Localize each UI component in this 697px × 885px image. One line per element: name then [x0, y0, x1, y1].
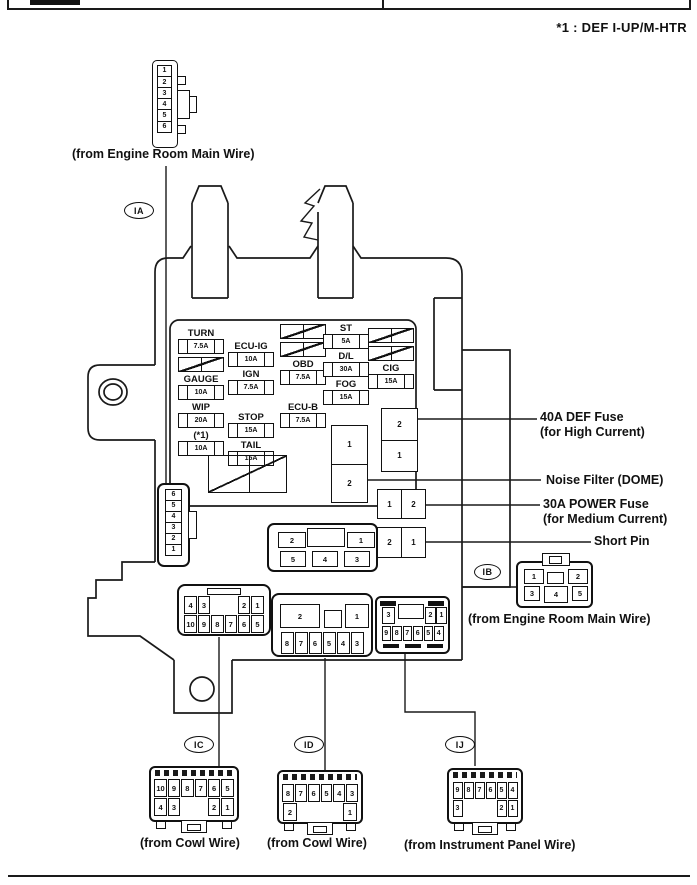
fuse-box-diagram-page: *1 : DEF I-UP/M-HTR 123456 (from Engine … [0, 0, 697, 885]
pin-cell [486, 800, 496, 817]
callout-line: (for Medium Current) [543, 512, 667, 527]
fuse-name: (*1) [178, 431, 224, 441]
connector-instrument-panel-ij: 987654 321 [447, 768, 523, 824]
fuse-amperage: 10A [237, 352, 265, 367]
cropped-table-edge [8, 0, 690, 10]
connector-latch [188, 511, 197, 539]
connector-foot [156, 821, 166, 829]
fuse-name: STOP [228, 413, 274, 423]
pin-row: 4321 [154, 798, 234, 816]
fuse: IGN 7.5A [228, 370, 274, 395]
blank-cell [324, 610, 342, 628]
ij-connector-block: 3 2 1 987654 [375, 596, 450, 654]
fuse-amperage: 7.5A [289, 370, 317, 385]
pin-cell: 3 [453, 800, 463, 817]
terminal-cell: 2 [378, 528, 401, 557]
fuse-slot [280, 324, 326, 339]
pin-cell: 6 [309, 632, 322, 654]
fuse-amperage: 5A [332, 334, 360, 349]
pin-cell: 5 [221, 779, 233, 797]
fuse [368, 328, 414, 343]
short-pin: 2 1 [377, 527, 426, 558]
pin-cell: 4 [184, 596, 196, 614]
pin-cell: 4 [333, 784, 345, 802]
pin-cell: 7 [195, 779, 207, 797]
shading [405, 644, 421, 648]
pin-cell: 5 [251, 615, 263, 633]
pin-cell: 6 [413, 626, 423, 641]
connector-engine-room-top: 123456 [152, 60, 202, 150]
callout-line: Noise Filter (DOME) [546, 473, 663, 488]
blank-cell [547, 572, 564, 584]
noise-filter-dome: 1 2 [331, 425, 368, 503]
pin-row: 21 [282, 803, 358, 821]
pin-cell: 5 [280, 551, 306, 567]
fuse: FOG 15A [323, 380, 369, 405]
pin-cell: 8 [392, 626, 402, 641]
label-from-engine-room-ib: (from Engine Room Main Wire) [468, 612, 651, 626]
fuse-name: D/L [323, 352, 369, 362]
shading [380, 601, 396, 606]
fuse-slot: 15A [368, 374, 414, 389]
pin-row: 1098765 [182, 615, 266, 633]
connector-foot [454, 823, 464, 831]
pin-cell: 10 [154, 779, 166, 797]
fuse-name: ST [323, 324, 369, 334]
fuse-column-4: ST 5A D/L 30A FOG 15A [323, 324, 369, 408]
pin-cell: 5 [424, 626, 434, 641]
pin-cell: 2 [283, 803, 297, 821]
fuse-amperage [281, 324, 325, 339]
pin-cell: 4 [154, 798, 166, 816]
fuse-name: CIG [368, 364, 414, 374]
pin-cell: 6 [486, 782, 496, 799]
connector-shroud [453, 772, 517, 778]
fuse-slot: 7.5A [280, 370, 326, 385]
connector-code-ij: IJ [445, 736, 475, 753]
pin-row: 876543 [282, 784, 358, 802]
terminal-cell: 2 [332, 464, 367, 503]
side-connector-ia: 654321 [157, 483, 190, 567]
fuse-slot: 7.5A [228, 380, 274, 395]
pin-cell [475, 800, 485, 817]
pin-cell: 2 [497, 800, 507, 817]
pin-cell: 2 [425, 607, 436, 624]
callout-line: 40A DEF Fuse [540, 410, 645, 425]
fuse [368, 346, 414, 361]
pin-cell: 1 [221, 798, 233, 816]
pin-cell: 2 [238, 596, 250, 614]
side-pin-column: 654321 [165, 490, 182, 556]
shading [383, 644, 399, 648]
label-from-engine-room-top: (from Engine Room Main Wire) [72, 147, 255, 161]
pin-cell: 9 [382, 626, 392, 641]
pin-cell: 1 [436, 607, 447, 624]
fuse-slot: 7.5A [280, 413, 326, 428]
connector-code-ib: IB [474, 564, 501, 580]
pin-cell: 1 [524, 569, 544, 584]
callout-def-fuse: 40A DEF Fuse (for High Current) [540, 410, 645, 439]
terminal-cell: 1 [378, 490, 401, 518]
fuse-column-2: ECU-IG 10A IGN 7.5A STOP 15A TAIL 15A [228, 342, 274, 469]
pin-cell: 7 [295, 632, 308, 654]
connector-latch-tip [189, 96, 197, 113]
terminal-cell: 1 [332, 426, 367, 464]
pin-cell: 10 [184, 615, 196, 633]
blank-cell [207, 588, 241, 595]
terminal-cell: 1 [401, 528, 425, 557]
fuse-slot [368, 328, 414, 343]
power-fuse-30a: 1 2 [377, 489, 426, 519]
pin-cell: 9 [198, 615, 210, 633]
pin-cell: 8 [211, 615, 223, 633]
terminal-cell: 2 [401, 490, 425, 518]
fuse-amperage: 7.5A [237, 380, 265, 395]
fuse-amperage [281, 342, 325, 357]
pin-cell: 5 [321, 784, 333, 802]
fuse [178, 357, 224, 372]
fuse-name: ECU-B [280, 403, 326, 413]
footnote-def-i-up: *1 : DEF I-UP/M-HTR [387, 20, 687, 35]
fuse-amperage [369, 328, 413, 343]
pin-cell: 7 [475, 782, 485, 799]
pin-row: 321 [452, 800, 518, 817]
fuse-amperage: 10A [187, 441, 215, 456]
pin-cell: 1 [345, 604, 369, 628]
connector-shroud [155, 770, 233, 776]
connector-cowl-ic: 1098765 4321 [149, 766, 239, 822]
fuse-slot: 7.5A [178, 339, 224, 354]
pin-cell: 5 [323, 632, 336, 654]
fuse: D/L 30A [323, 352, 369, 377]
pin-cell: 4 [508, 782, 518, 799]
pin-cell: 4 [434, 626, 444, 641]
pin-cell: 3 [346, 784, 358, 802]
pin-cell: 9 [453, 782, 463, 799]
pin-cell: 1 [508, 800, 518, 817]
pin-cell [328, 803, 342, 821]
fuse-amperage: 15A [377, 374, 405, 389]
fuse-name: TAIL [228, 441, 274, 451]
connector-foot [506, 823, 516, 831]
fuse: CIG 15A [368, 364, 414, 389]
foot-hole [190, 677, 214, 701]
pin-cell: 6 [208, 779, 220, 797]
terminal-cell: 1 [382, 440, 417, 472]
connector-pin-column: 123456 [157, 66, 172, 133]
connector-engine-room-ib: 1 2 3 4 5 [516, 561, 593, 608]
fuse [280, 342, 326, 357]
fuse-slot: 20A [178, 413, 224, 428]
mounting-post-left [192, 186, 228, 298]
pin-cell: 2 [208, 798, 220, 816]
pin-cell: 4 [337, 632, 350, 654]
blank-cell [307, 528, 345, 547]
fuse-amperage: 20A [187, 413, 215, 428]
connector-code-ic: IC [184, 736, 214, 753]
pin-cell [464, 800, 474, 817]
callout-line: (for High Current) [540, 425, 645, 440]
connector-foot [346, 823, 356, 831]
callout-noise-filter: Noise Filter (DOME) [546, 473, 663, 488]
pin-row: 987654 [452, 782, 518, 799]
pin-cell: 7 [225, 615, 237, 633]
fuse-amperage: 15A [237, 423, 265, 438]
pin-cell: 3 [168, 798, 180, 816]
fuse-slot [178, 357, 224, 372]
bracket-hole-inner [104, 384, 122, 400]
connector-tab [177, 76, 186, 85]
pin-cell [195, 798, 207, 816]
box-inner-channel [434, 298, 462, 390]
pin-cell: 2 [280, 604, 320, 628]
fuse [280, 388, 326, 400]
pin-cell [298, 803, 312, 821]
connector-code-id: ID [294, 736, 324, 753]
fuse: ST 5A [323, 324, 369, 349]
fuse-amperage: 10A [187, 385, 215, 400]
pin-cell [225, 596, 237, 614]
pin-row: 1098765 [154, 779, 234, 797]
def-fuse-40a: 2 1 [381, 408, 418, 472]
pin-cell: 6 [308, 784, 320, 802]
pin-cell: 6 [238, 615, 250, 633]
pin-cell: 6 [157, 121, 172, 134]
connector-code-ia: IA [124, 202, 154, 219]
label-from-instrument-panel: (from Instrument Panel Wire) [404, 838, 575, 852]
id-connector-block: 2 1 876543 [271, 593, 373, 657]
fuse-amperage [179, 357, 223, 372]
pin-cell: 8 [181, 779, 193, 797]
fuse: STOP 15A [228, 413, 274, 438]
fuse-name: TURN [178, 329, 224, 339]
pin-cell: 3 [524, 586, 540, 601]
fuse-column-5: CIG 15A [368, 328, 414, 392]
pin-cell: 2 [568, 569, 588, 584]
pin-row: 987654 [380, 626, 445, 641]
fuse-name: OBD [280, 360, 326, 370]
fuse-name: IGN [228, 370, 274, 380]
callout-power-fuse: 30A POWER Fuse (for Medium Current) [543, 497, 667, 526]
pin-cell: 8 [282, 784, 294, 802]
pin-cell: 1 [251, 596, 263, 614]
fuse-amperage: 7.5A [187, 339, 215, 354]
label-from-cowl-id: (from Cowl Wire) [267, 836, 367, 850]
pin-cell: 5 [497, 782, 507, 799]
fuse [280, 324, 326, 339]
fuse-column-3: OBD 7.5A ECU-B 7.5A [280, 324, 326, 431]
pin-cell: 5 [572, 586, 588, 601]
fuse-slot: 15A [323, 390, 369, 405]
connector-cowl-id: 876543 21 [277, 770, 363, 824]
connector-lock-tab [472, 822, 498, 835]
fuse-slot [280, 342, 326, 357]
fuse [228, 398, 274, 410]
connector-foot [222, 821, 232, 829]
pin-cell: 2 [278, 532, 306, 548]
center-connector-block: 2 1 5 4 3 [267, 523, 378, 572]
pin-cell: 9 [168, 779, 180, 797]
fuse: ECU-B 7.5A [280, 403, 326, 428]
callout-short-pin: Short Pin [594, 534, 650, 549]
pin-cell: 1 [343, 803, 357, 821]
fuse: (*1) 10A [178, 431, 224, 456]
fuse-amperage: 30A [332, 362, 360, 377]
connector-tab-inner [549, 556, 562, 564]
pin-cell: 8 [281, 632, 294, 654]
fuse-slot: 10A [178, 441, 224, 456]
fuse-slot: 30A [323, 362, 369, 377]
callout-line: 30A POWER Fuse [543, 497, 667, 512]
pin-cell: 1 [347, 532, 375, 548]
terminal-cell: 2 [382, 409, 417, 440]
fuse-name: GAUGE [178, 375, 224, 385]
fuse-slot: 10A [178, 385, 224, 400]
shading [428, 601, 444, 606]
box-right-compartment [462, 350, 510, 587]
ic-connector-block: 4321 1098765 [177, 584, 271, 636]
pin-row: 876543 [276, 632, 368, 654]
pin-cell: 7 [403, 626, 413, 641]
fuse-slot: 15A [228, 423, 274, 438]
connector-foot [284, 823, 294, 831]
shading [427, 644, 443, 648]
fuse-name: WIP [178, 403, 224, 413]
pin-cell [211, 596, 223, 614]
fuse-amperage [369, 346, 413, 361]
connector-lock-tab [181, 820, 207, 833]
fuse: WIP 20A [178, 403, 224, 428]
pin-cell: 7 [295, 784, 307, 802]
mounting-post-right [318, 186, 353, 298]
connector-tab [177, 125, 186, 134]
pin-cell: 3 [344, 551, 370, 567]
pin-cell [313, 803, 327, 821]
pin-cell: 3 [351, 632, 364, 654]
fuse: TURN 7.5A [178, 329, 224, 354]
fuse: GAUGE 10A [178, 375, 224, 400]
pin-cell [181, 798, 193, 816]
fuse-name: ECU-IG [228, 342, 274, 352]
pin-cell: 3 [198, 596, 210, 614]
fuse: ECU-IG 10A [228, 342, 274, 367]
connector-shroud [283, 774, 357, 780]
fuse: OBD 7.5A [280, 360, 326, 385]
callout-line: Short Pin [594, 534, 650, 549]
pin-cell: 4 [312, 551, 338, 567]
fuse-name: FOG [323, 380, 369, 390]
pin-cell: 4 [544, 586, 568, 603]
fuse-slot: 5A [323, 334, 369, 349]
fuse-slot [368, 346, 414, 361]
crossed-component-box [208, 455, 287, 493]
cropped-table-smudge [30, 0, 80, 5]
fuse-amperage: 15A [332, 390, 360, 405]
connector-lock-tab [307, 822, 333, 835]
fuse-slot: 10A [228, 352, 274, 367]
pin-row: 4321 [182, 596, 266, 614]
label-from-cowl-ic: (from Cowl Wire) [140, 836, 240, 850]
fuse-column-1: TURN 7.5A GAUGE 10A WIP 20A (*1) 10A [178, 329, 224, 459]
pin-cell: 8 [464, 782, 474, 799]
fuse-amperage: 7.5A [289, 413, 317, 428]
blank-cell [398, 604, 424, 619]
pin-cell: 3 [382, 607, 395, 624]
pin-cell: 1 [165, 544, 182, 556]
